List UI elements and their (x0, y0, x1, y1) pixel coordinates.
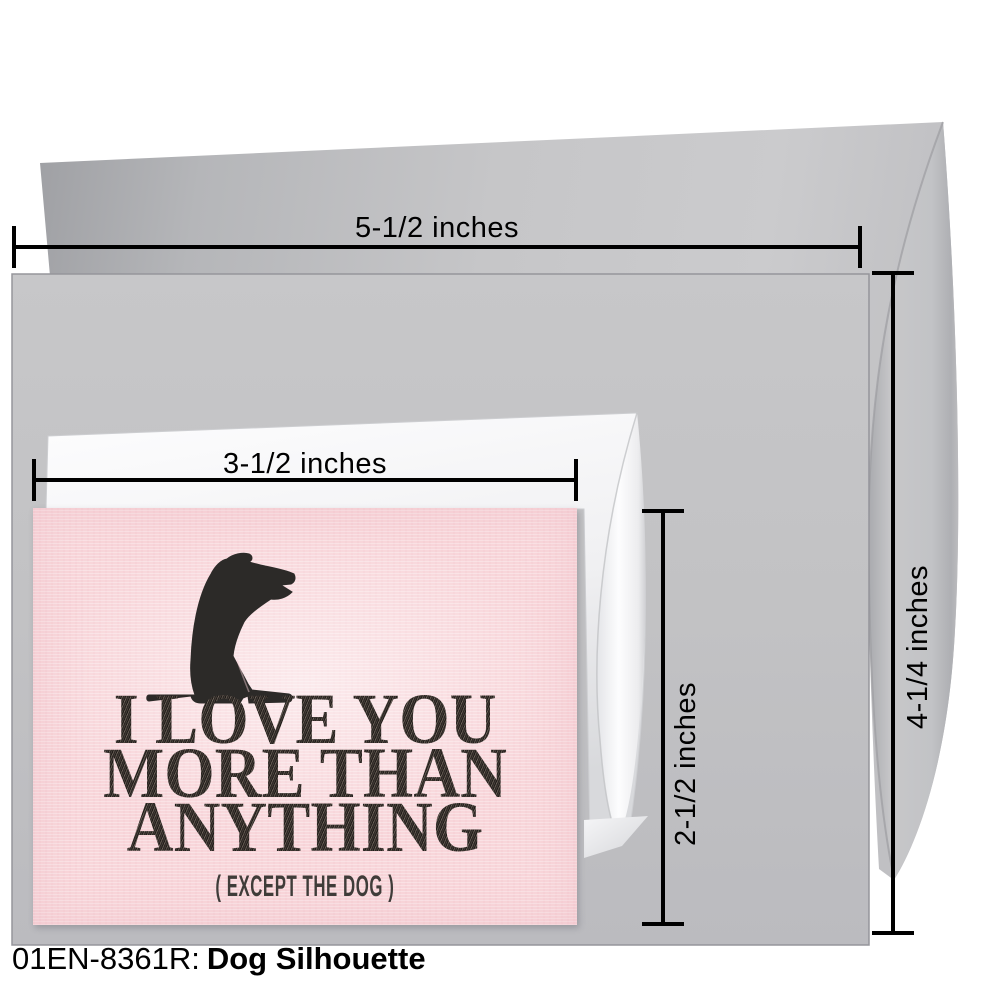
card-message-line-3: ANYTHING (60, 800, 550, 854)
product-title: Dog Silhouette (207, 941, 426, 976)
large-envelope-width-label: 5-1/2 inches (12, 212, 862, 245)
greeting-card-product-image: 5-1/2 inches 3-1/2 inches 4-1/4 inches 2… (0, 0, 984, 984)
large-envelope-width-dimension-line (12, 245, 862, 249)
greeting-card: I LOVE YOU MORE THAN ANYTHING ( EXCEPT T… (33, 508, 577, 925)
small-envelope-height-label: 2-1/2 inches (665, 509, 707, 926)
large-envelope-height-dimension-line (891, 271, 895, 935)
small-envelope-width-label: 3-1/2 inches (32, 448, 578, 481)
product-caption: 01EN-8361R:Dog Silhouette (12, 941, 426, 977)
card-tagline: ( EXCEPT THE DOG ) (33, 870, 577, 904)
product-code: 01EN-8361R: (12, 941, 200, 976)
card-message: I LOVE YOU MORE THAN ANYTHING (60, 692, 550, 854)
large-envelope-height-label: 4-1/4 inches (897, 271, 939, 935)
